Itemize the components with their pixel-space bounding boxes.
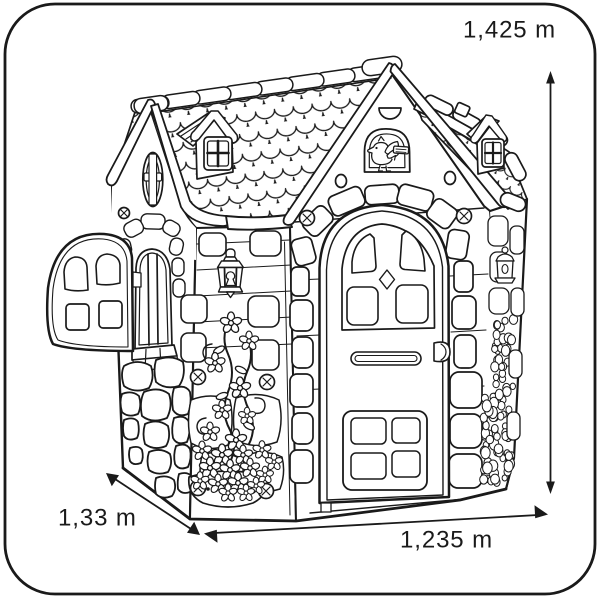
svg-text:1,235 m: 1,235 m: [400, 527, 493, 554]
svg-text:1,33 m: 1,33 m: [58, 505, 137, 532]
svg-text:1,425 m: 1,425 m: [463, 17, 556, 44]
